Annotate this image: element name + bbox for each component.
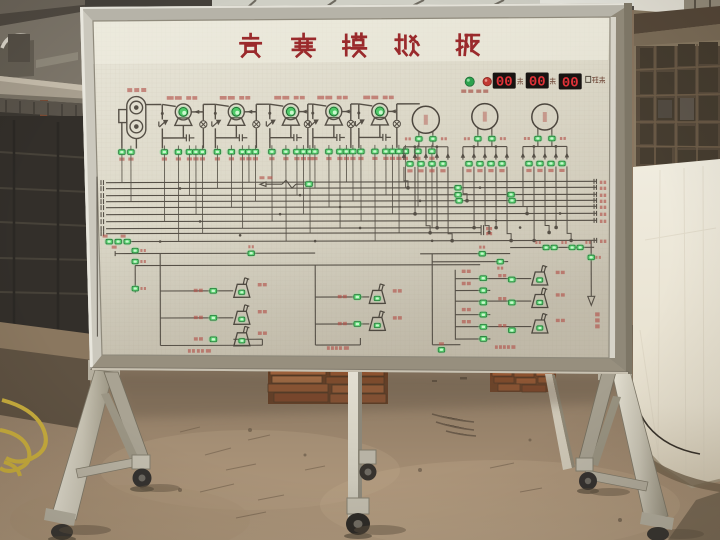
svg-text:00: 00	[562, 75, 579, 91]
svg-text:00: 00	[529, 74, 546, 90]
svg-text:00: 00	[496, 75, 513, 91]
